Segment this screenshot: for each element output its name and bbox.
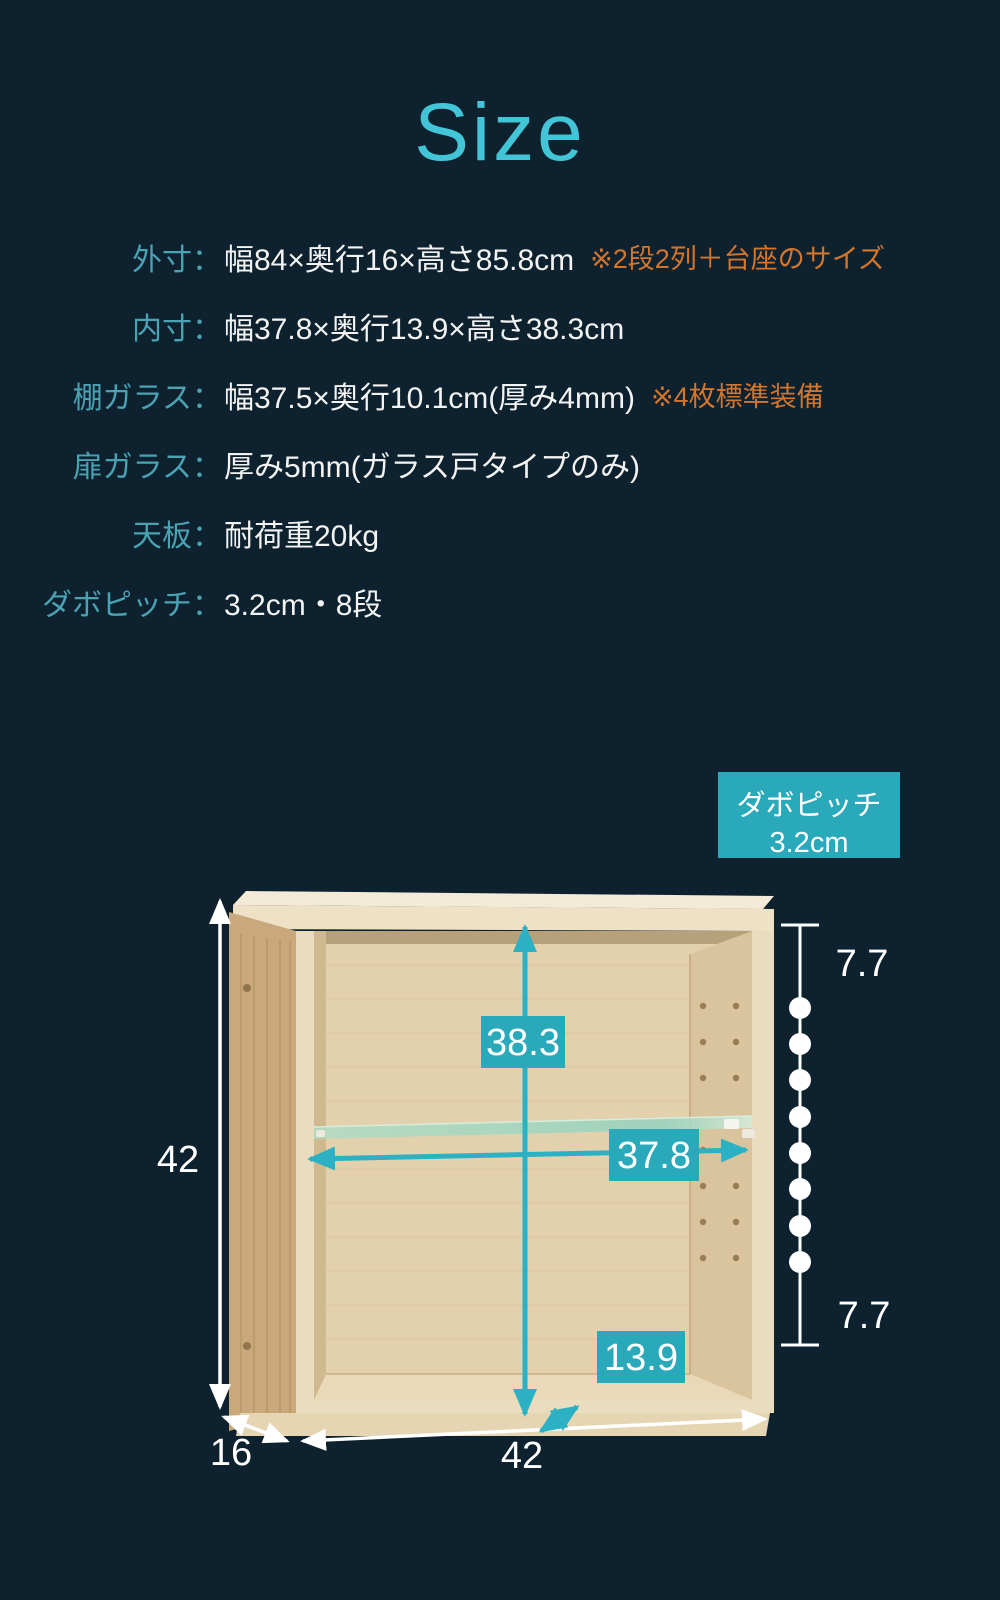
spec-row-dowel-pitch: ダボピッチ： 3.2cm・8段 [0,567,1000,636]
spec-row-top-board: 天板： 耐荷重20kg [0,498,1000,567]
pitch-bottom-label: 7.7 [838,1295,891,1337]
cabinet-floor [314,1374,752,1400]
dowel-dot [789,997,811,1019]
shelf-pin [742,1129,755,1138]
cabinet-left-panel [229,912,296,1431]
inner-width-label: 37.8 [617,1135,691,1177]
pitch-top-label: 7.7 [836,943,889,985]
spec-value: 幅37.5×奥行10.1cm(厚み4mm) [224,373,635,417]
shelf-pin [316,1130,325,1137]
dowel-dot [789,1178,811,1200]
spec-note: ※4枚標準装備 [651,375,824,414]
dowel-dot [789,1142,811,1164]
spec-value: 3.2cm・8段 [224,580,382,624]
outer-depth-label: 16 [210,1432,252,1474]
spec-value: 厚み5mm(ガラス戸タイプのみ) [224,442,640,486]
dowel-dot [789,1106,811,1128]
spec-label: 天板： [0,511,222,555]
side-panel-hole [243,1342,251,1350]
spec-list: 外寸： 幅84×奥行16×高さ85.8cm ※2段2列＋台座のサイズ 内寸： 幅… [0,222,1000,636]
inner-height-label: 38.3 [486,1022,560,1064]
dowel-dot [789,1033,811,1055]
spec-value: 幅84×奥行16×高さ85.8cm [224,235,574,279]
dowel-dot [789,1215,811,1237]
spec-label: ダボピッチ： [0,580,222,624]
spec-label: 扉ガラス： [0,442,222,486]
spec-label: 内寸： [0,304,222,348]
dimension-diagram: 38.3 37.8 13.9 ダボピッチ 3.2cm 42 16 42 7.7 … [0,740,1000,1500]
inner-depth-label: 13.9 [604,1337,678,1379]
spec-row-door-glass: 扉ガラス： 厚み5mm(ガラス戸タイプのみ) [0,429,1000,498]
spec-label: 外寸： [0,235,222,279]
spec-note: ※2段2列＋台座のサイズ [590,237,885,276]
spec-row-inner-size: 内寸： 幅37.8×奥行13.9×高さ38.3cm [0,291,1000,360]
spec-value: 幅37.8×奥行13.9×高さ38.3cm [224,304,624,348]
spec-row-shelf-glass: 棚ガラス： 幅37.5×奥行10.1cm(厚み4mm) ※4枚標準装備 [0,360,1000,429]
spec-value: 耐荷重20kg [224,511,379,555]
outer-width-label: 42 [501,1435,543,1477]
spec-label: 棚ガラス： [0,373,222,417]
outer-height-label: 42 [157,1139,199,1181]
dowel-dot [789,1251,811,1273]
cabinet-top-board [233,905,774,931]
page-title: Size [0,86,1000,180]
shelf-pin [724,1119,739,1129]
dowel-pitch-callout-line1: ダボピッチ [736,789,881,822]
cabinet-right-inner-wall [690,931,752,1400]
dowel-dot [789,1069,811,1091]
spec-row-outer-size: 外寸： 幅84×奥行16×高さ85.8cm ※2段2列＋台座のサイズ [0,222,1000,291]
side-panel-hole [243,984,251,992]
dowel-pitch-callout-line2: 3.2cm [770,827,849,859]
